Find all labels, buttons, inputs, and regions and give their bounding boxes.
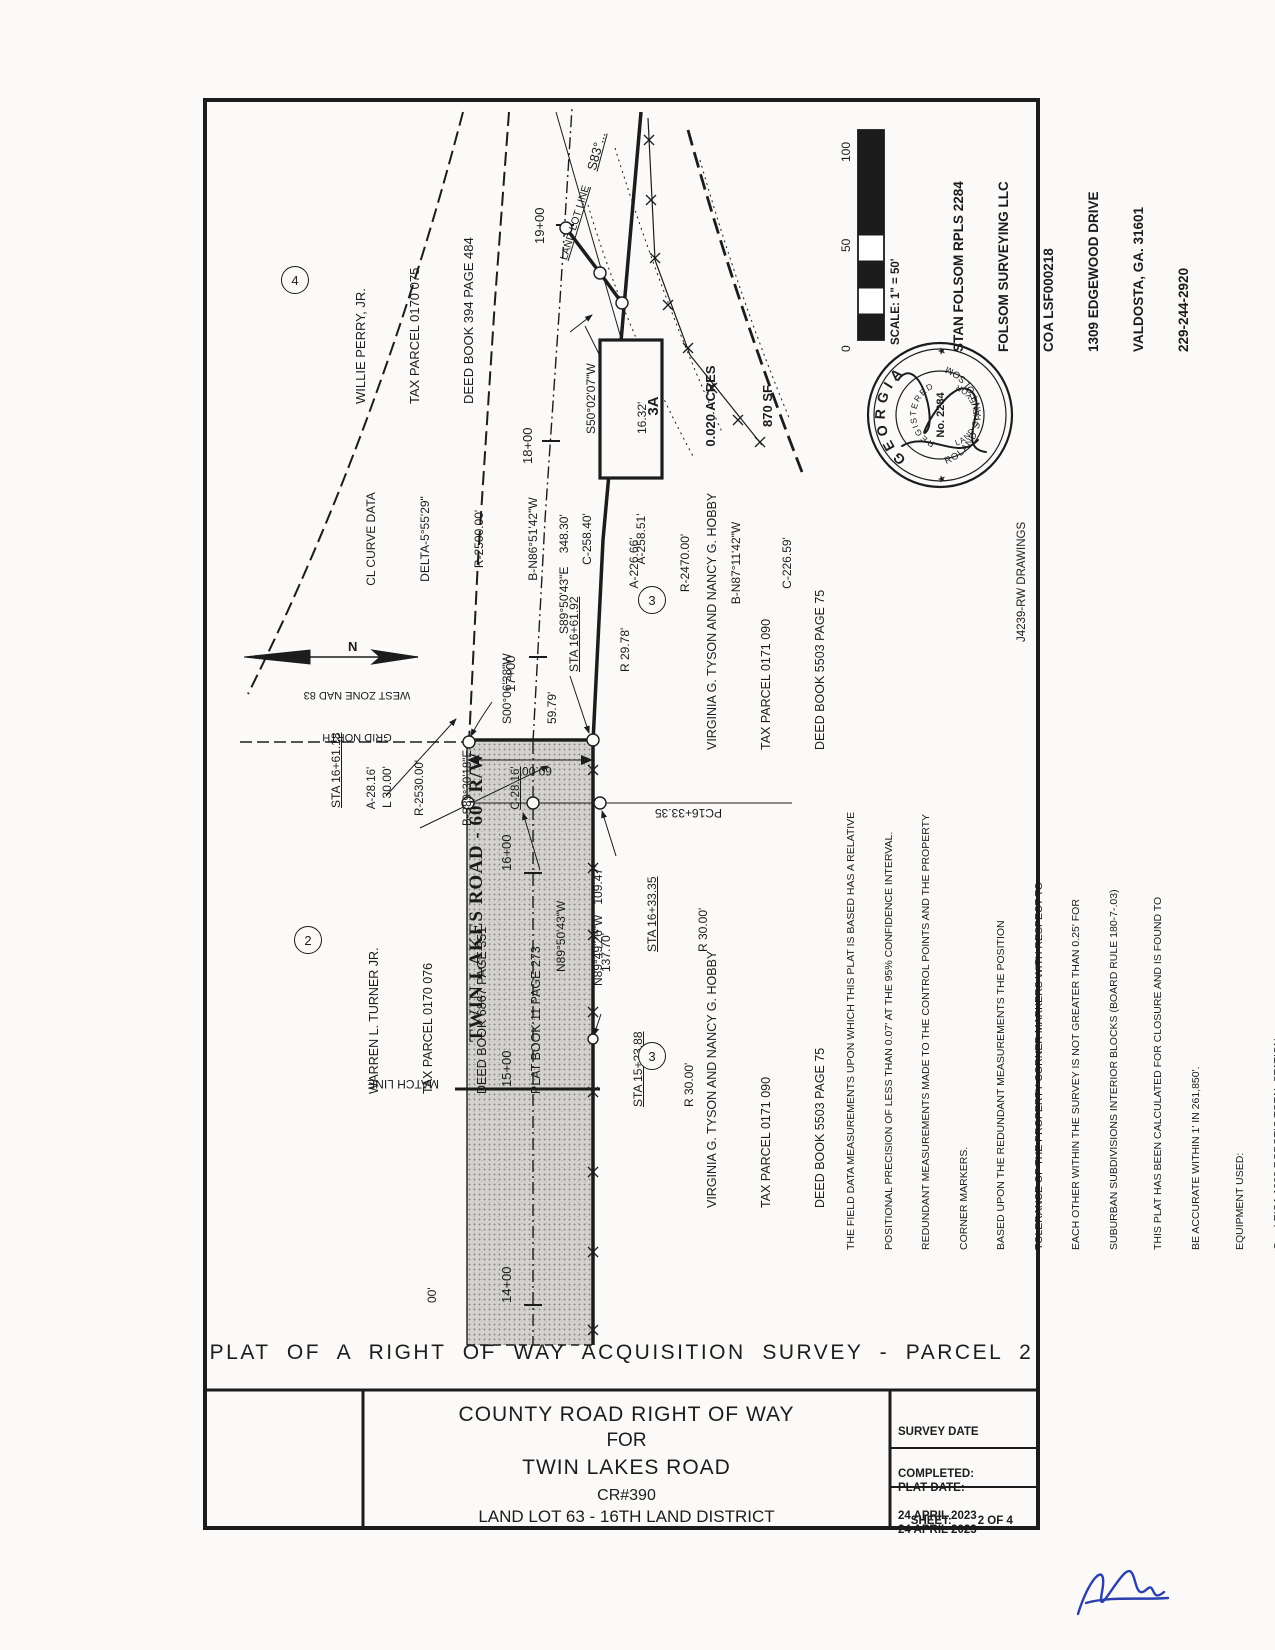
title-block-project-line1: COUNTY ROAD RIGHT OF WAY [363,1403,890,1427]
seal-name: ROLAND STAN FOLSOM [943,363,984,467]
north-arrow-n-label: N [348,639,357,654]
sheet-number-block: SHEET:2 OF 4 [898,1500,1034,1542]
station-14-label: 14+00 [498,1266,515,1303]
seal-number: No. 2284 [935,391,947,437]
station-18-label: 18+00 [519,427,536,464]
sheet-label: SHEET: [911,1515,952,1527]
approval-signature [1078,1571,1168,1614]
svg-text:REGISTERED: REGISTERED [908,381,936,450]
scale-bar [858,130,884,340]
match-line-label: MATCH LINE [347,1077,439,1091]
road-name-label: TWIN LAKES ROAD - 60' R/W [468,752,485,1043]
scale-tick-50: 50 [838,239,855,252]
seal-registered: REGISTERED [908,381,936,450]
area-box-label: 3A 0.020 ACRES 870 SF [606,340,815,472]
plat-sheet: GEORGIA ROLAND STAN FOLSOM REGISTERED LA… [0,0,1275,1650]
bearing-s83-label: S83°... [584,130,609,172]
plat-title: PLAT OF A RIGHT OF WAY ACQUISITION SURVE… [205,1341,1038,1365]
parcel-2-number: 2 [294,926,322,954]
survey-notes: THE FIELD DATA MEASUREMENTS UPON WHICH T… [820,640,1275,1250]
title-block-project-line2: FOR [363,1430,890,1452]
svg-text:ROLAND STAN FOLSOM: ROLAND STAN FOLSOM [943,363,984,467]
svg-text:LAND SURVEYOR: LAND SURVEYOR [954,382,981,447]
title-block-project-line3: TWIN LAKES ROAD [363,1456,890,1480]
seal-star-left-icon: ★ [937,474,948,483]
drawing-reference-label: J4239-RW DRAWINGS [1014,522,1031,642]
parcel-4-number: 4 [281,266,309,294]
svg-text:GEORGIA: GEORGIA [872,362,909,469]
seal-signature-scribble [898,373,986,452]
scale-label: SCALE: 1" = 50' [888,259,905,345]
seal-state: GEORGIA [872,362,909,469]
seal-title: LAND SURVEYOR [954,382,981,447]
road-width-dimension-label: 60.00' [500,764,552,778]
sta-16-33-35-label: STA 16+33.35 R 30.00' [610,876,746,952]
title-block-road-number: CR#390 [363,1487,890,1505]
land-lot-line-label: LAND LOT LINE [558,184,592,262]
title-block-land-lot: LAND LOT 63 - 16TH LAND DISTRICT [363,1507,890,1527]
station-19-label: 19+00 [531,207,548,244]
surveyor-seal: GEORGIA ROLAND STAN FOLSOM REGISTERED LA… [868,343,1012,487]
surveyor-info: STAN FOLSOM RPLS 2284 FOLSOM SURVEYING L… [921,181,1221,352]
pc-station-label: PC16+33.35 [618,806,722,820]
scale-tick-100: 100 [838,142,855,162]
sheet-value: 2 OF 4 [978,1515,1013,1527]
parcel-3-number-lower: 3 [638,1042,666,1070]
bearing-n89b-label: N89°49'26"W 109.47' [590,866,607,986]
bearing-s00-label: S00°06'38"W 59.79' [470,653,590,724]
scale-tick-0: 0 [838,345,855,352]
partial-dimension-label: 00' [424,1287,441,1303]
parcel-4-owner-label: WILLIE PERRY, JR. TAX PARCEL 0170 075 DE… [316,237,514,404]
curve-data-3-label: A-28.16' R-2530.00' B-S89°30'18"E C-28.1… [332,736,556,840]
